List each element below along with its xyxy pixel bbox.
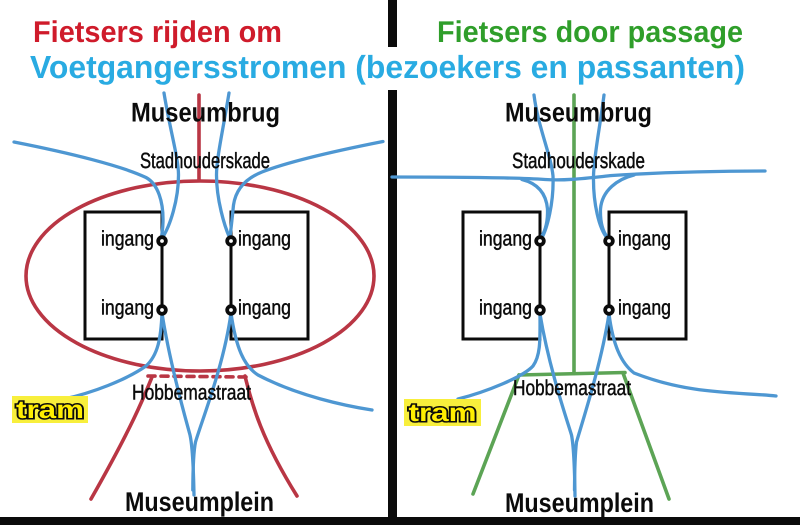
svg-text:ingang: ingang	[618, 228, 671, 251]
svg-text:Voetgangersstromen (bezoekers: Voetgangersstromen (bezoekers en passant…	[30, 49, 745, 85]
svg-text:ingang: ingang	[479, 228, 532, 251]
svg-text:ingang: ingang	[101, 228, 154, 251]
svg-text:ingang: ingang	[618, 297, 671, 320]
svg-text:Hobbemastraat: Hobbemastraat	[132, 381, 251, 405]
svg-text:Hobbemastraat: Hobbemastraat	[513, 376, 631, 400]
svg-text:ingang: ingang	[479, 297, 532, 320]
svg-text:Museumbrug: Museumbrug	[131, 98, 280, 128]
svg-text:Fietsers door passage: Fietsers door passage	[437, 16, 743, 49]
svg-text:tram: tram	[16, 396, 84, 424]
svg-text:ingang: ingang	[238, 297, 291, 320]
svg-text:Stadhouderskade: Stadhouderskade	[140, 148, 270, 173]
svg-text:Museumplein: Museumplein	[125, 487, 274, 517]
svg-text:Museumbrug: Museumbrug	[505, 98, 652, 128]
svg-text:Museumplein: Museumplein	[505, 488, 654, 518]
svg-text:ingang: ingang	[238, 228, 291, 251]
svg-text:ingang: ingang	[101, 297, 154, 320]
svg-text:tram: tram	[409, 399, 477, 427]
svg-text:Stadhouderskade: Stadhouderskade	[512, 148, 645, 173]
svg-text:Fietsers rijden om: Fietsers rijden om	[33, 16, 282, 49]
